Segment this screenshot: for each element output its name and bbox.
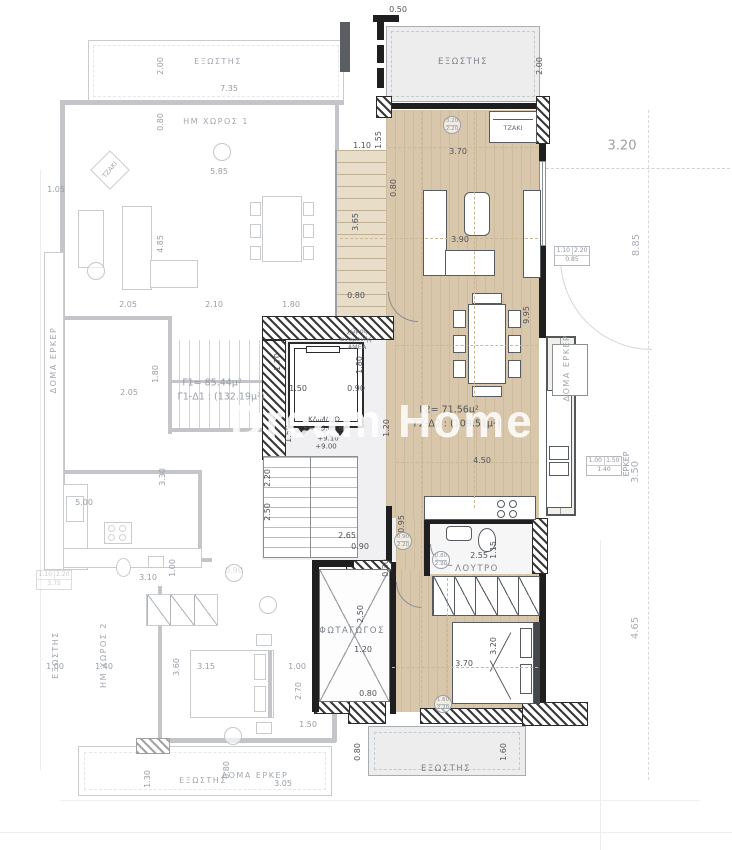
door-size-badge: 1.602.20 [434, 695, 452, 713]
door-size-badge [87, 262, 105, 280]
door-size-badge [213, 143, 231, 161]
door-size-badge: 0.802.20 [432, 551, 450, 569]
door-size-badge [224, 727, 242, 745]
floor-plan-canvas: 1.102.20 0.85 1.001.50 1.40 1.102.20 3.7… [0, 0, 732, 850]
door-size-badge: 0.902.20 [394, 532, 412, 550]
door-size-badge: 3.202.20 [443, 116, 461, 134]
watermark: Dream Home [230, 394, 534, 448]
door-size-badge [259, 596, 277, 614]
door-size-badge [225, 564, 243, 582]
